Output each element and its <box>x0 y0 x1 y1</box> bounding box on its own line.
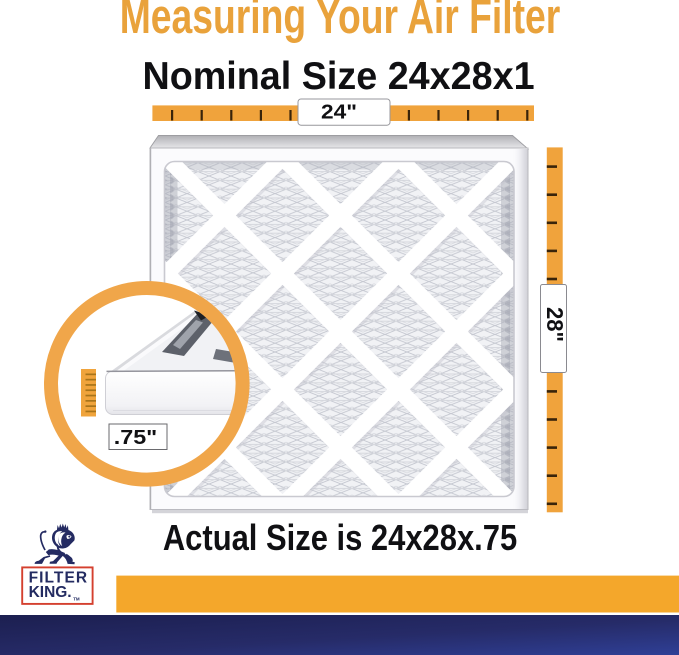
svg-text:KING.: KING. <box>29 584 72 601</box>
svg-text:Nominal Size 24x28x1: Nominal Size 24x28x1 <box>142 55 534 97</box>
svg-text:24": 24" <box>321 102 357 124</box>
svg-text:Measuring Your Air Filter: Measuring Your Air Filter <box>120 0 561 44</box>
svg-text:Actual Size is 24x28x.75: Actual Size is 24x28x.75 <box>163 517 517 558</box>
svg-text:TM: TM <box>73 597 80 602</box>
svg-text:28": 28" <box>542 307 568 342</box>
svg-text:.75": .75" <box>114 427 158 449</box>
